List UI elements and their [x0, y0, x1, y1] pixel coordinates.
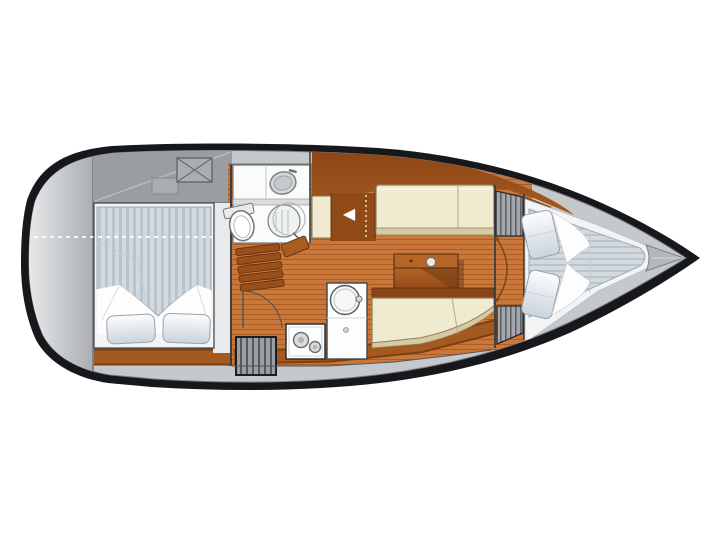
faucet — [356, 296, 362, 302]
pillow — [163, 313, 211, 344]
locker-hatched — [496, 191, 523, 236]
table-knob — [427, 258, 436, 267]
head-shelf — [233, 199, 310, 205]
galley-sink-unit — [327, 283, 367, 359]
companionway-panel — [312, 196, 331, 238]
wardrobe-drawers — [235, 243, 284, 291]
round-sink — [331, 286, 360, 315]
settee-top — [376, 185, 494, 235]
boat-floorplan-svg: Sailboat interior floor plan (top view) — [0, 0, 720, 540]
deck-locker-hatch — [177, 158, 212, 182]
companionway-steps — [236, 337, 276, 375]
stove — [286, 324, 325, 359]
pillow — [106, 314, 155, 344]
head-compartment — [223, 165, 310, 248]
companionway-arrow-icon: ◀ — [343, 204, 356, 223]
cockpit-deck — [93, 146, 232, 203]
boat-floorplan: Sailboat interior floor plan (top view) — [0, 0, 720, 540]
